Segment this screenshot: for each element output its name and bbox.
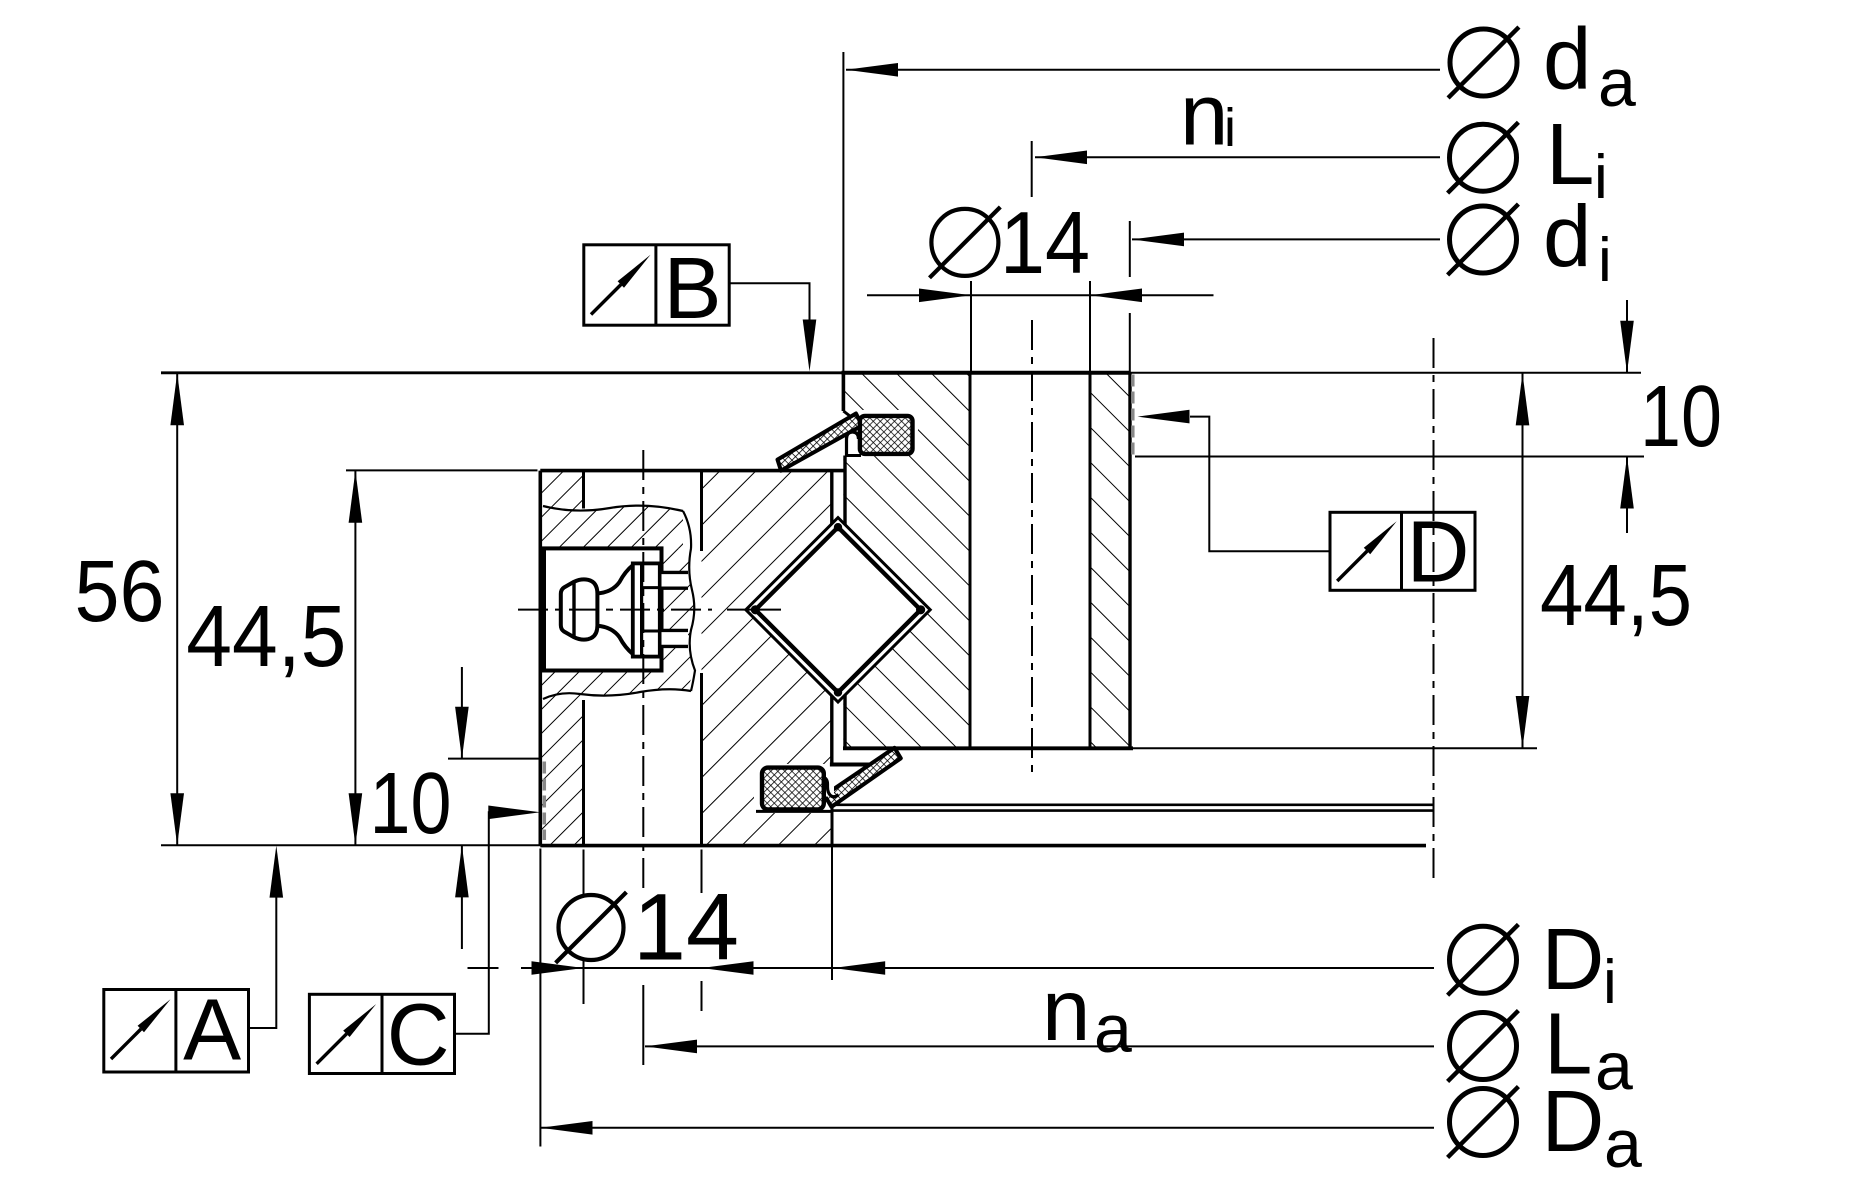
svg-text:D: D	[1542, 1073, 1605, 1170]
svg-text:10: 10	[370, 755, 452, 852]
svg-text:14: 14	[633, 875, 739, 981]
svg-text:D: D	[1542, 911, 1605, 1008]
svg-text:d: d	[1543, 189, 1591, 286]
svg-text:C: C	[387, 986, 450, 1083]
svg-text:d: d	[1543, 11, 1591, 108]
svg-text:a: a	[1604, 1106, 1642, 1182]
svg-text:a: a	[1094, 991, 1132, 1067]
svg-text:i: i	[1224, 98, 1236, 158]
svg-text:14: 14	[1000, 193, 1090, 292]
svg-text:n: n	[1042, 962, 1090, 1059]
svg-text:i: i	[1598, 226, 1612, 295]
svg-text:i: i	[1603, 948, 1617, 1017]
svg-text:A: A	[183, 982, 241, 1079]
svg-text:56: 56	[75, 543, 165, 640]
svg-text:i: i	[1594, 143, 1608, 212]
svg-text:44,5: 44,5	[1540, 547, 1692, 644]
svg-text:a: a	[1598, 45, 1636, 121]
svg-text:10: 10	[1640, 368, 1722, 465]
svg-text:D: D	[1407, 503, 1470, 600]
svg-text:n: n	[1180, 67, 1228, 164]
svg-text:44,5: 44,5	[186, 588, 346, 685]
svg-text:B: B	[663, 240, 721, 337]
